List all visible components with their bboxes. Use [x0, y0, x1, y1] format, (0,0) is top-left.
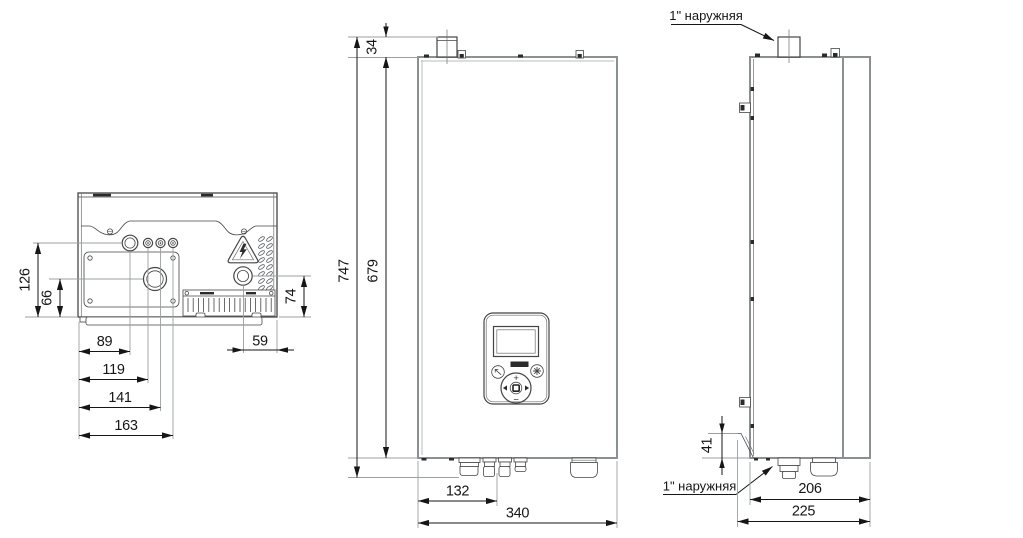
dim-119: 119 — [79, 362, 148, 380]
dim-679: 679 — [366, 57, 387, 458]
front-view: + − — [337, 23, 618, 528]
dim-label-747: 747 — [337, 259, 353, 283]
dim-label-225: 225 — [792, 504, 816, 520]
dim-141: 141 — [79, 390, 161, 408]
dim-label-41: 41 — [700, 438, 716, 454]
thread-label-bottom: 1" наружняя — [663, 479, 737, 494]
dim-163: 163 — [79, 418, 173, 436]
dim-747: 747 — [337, 37, 358, 478]
side-body — [750, 57, 843, 458]
mount-clip — [201, 194, 213, 197]
dim-225: 225 — [738, 504, 871, 522]
dim-66: 66 — [40, 279, 61, 317]
thread-callout-top: 1" наружняя — [669, 8, 774, 41]
rear-bracket — [843, 57, 870, 458]
mounting-tab — [740, 398, 751, 408]
boiler-dimension-drawing: 126 66 74 89 119 141 163 — [0, 0, 1023, 538]
dim-label-119: 119 — [102, 362, 124, 378]
dim-label-141: 141 — [108, 390, 132, 406]
dim-label-163: 163 — [114, 418, 138, 434]
leader-line — [736, 467, 773, 495]
dpad-plus-label: + — [513, 373, 519, 384]
side-view: 1" наружняя 1" наружняя 41 206 — [663, 8, 870, 527]
dim-label-89: 89 — [97, 334, 113, 350]
bottom-fittings-side — [754, 458, 838, 479]
thread-callout-bottom: 1" наружняя — [663, 467, 773, 495]
dim-label-679: 679 — [366, 259, 382, 283]
mount-clip — [93, 194, 111, 197]
dim-34: 34 — [365, 23, 389, 68]
technical-drawing-page: 126 66 74 89 119 141 163 — [0, 0, 1023, 538]
dim-41: 41 — [700, 416, 725, 475]
vent-grille — [183, 290, 275, 319]
bottom-glands-front — [422, 458, 598, 478]
dim-label-132: 132 — [446, 484, 470, 500]
dim-340: 340 — [418, 506, 617, 524]
dim-label-340: 340 — [506, 506, 530, 522]
bottom-gland-side — [811, 458, 838, 476]
dim-74: 74 — [284, 276, 305, 317]
control-panel: + − — [484, 313, 549, 406]
dim-label-66: 66 — [40, 290, 56, 306]
dim-label-59: 59 — [252, 334, 268, 350]
dpad-minus-label: − — [513, 395, 519, 406]
dim-label-206: 206 — [798, 481, 822, 497]
display-slot — [511, 362, 529, 368]
leader-line — [741, 25, 774, 41]
bottom-lip — [86, 317, 262, 325]
dim-label-34: 34 — [365, 39, 381, 55]
dim-126: 126 — [18, 243, 39, 317]
dim-132: 132 — [418, 484, 497, 502]
dim-label-126: 126 — [18, 268, 34, 292]
pipe-stub-bottom-side — [778, 458, 800, 479]
dim-206: 206 — [750, 481, 870, 500]
mounting-tab — [740, 103, 751, 113]
thread-label-top: 1" наружняя — [669, 8, 743, 23]
bottom-view: 126 66 74 89 119 141 163 — [18, 193, 312, 439]
dim-59: 59 — [227, 334, 294, 353]
dim-label-74: 74 — [284, 289, 300, 305]
dim-89: 89 — [79, 334, 130, 352]
